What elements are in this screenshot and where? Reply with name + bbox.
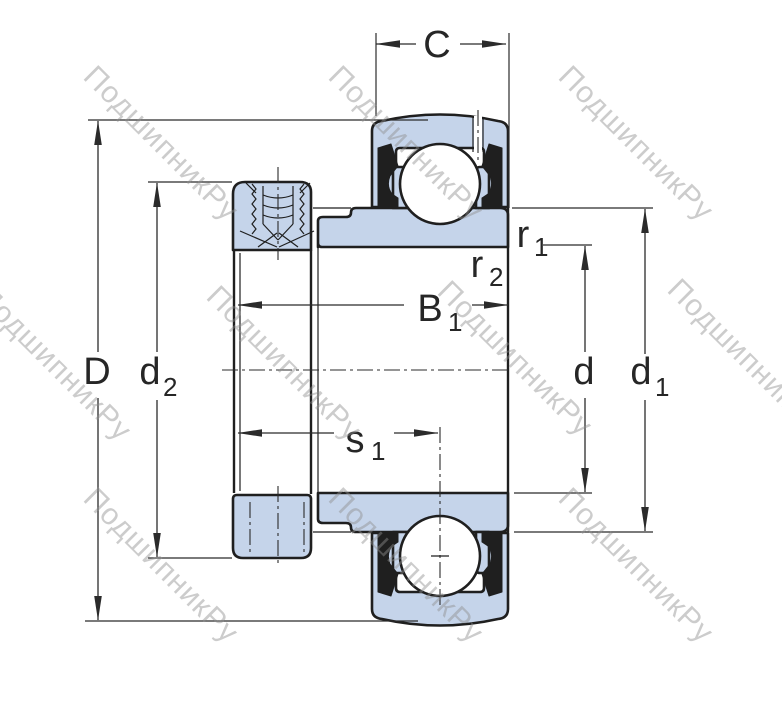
watermark-layer: ПодшипникРу ПодшипникРу ПодшипникРу Подш… [0,60,782,650]
label-r1-sub: 1 [534,232,548,262]
label-r2: r [471,244,484,286]
label-d: d [573,351,594,393]
label-r1: r [517,214,530,256]
bearing-drawing-svg: C D d 2 B 1 s 1 d d 1 r 1 r 2 ПодшипникР… [0,0,782,704]
locking-collar-bottom [233,495,311,558]
watermark: ПодшипникРу [0,280,138,448]
label-r2-sub: 2 [489,262,503,292]
locking-collar-top [233,182,311,250]
label-d2: d [139,351,160,393]
label-d1: d [630,351,651,393]
label-d2-sub: 2 [163,372,177,402]
bearing-diagram: C D d 2 B 1 s 1 d d 1 r 1 r 2 ПодшипникР… [0,0,782,704]
watermark: ПодшипникРу [552,482,720,650]
watermark: ПодшипникРу [552,60,720,228]
watermark: ПодшипникРу [77,482,245,650]
label-C: C [423,24,450,66]
label-d1-sub: 1 [655,372,669,402]
watermark: ПодшипникРу [661,273,782,441]
watermark: ПодшипникРу [77,60,245,228]
label-s1-sub: 1 [371,436,385,466]
